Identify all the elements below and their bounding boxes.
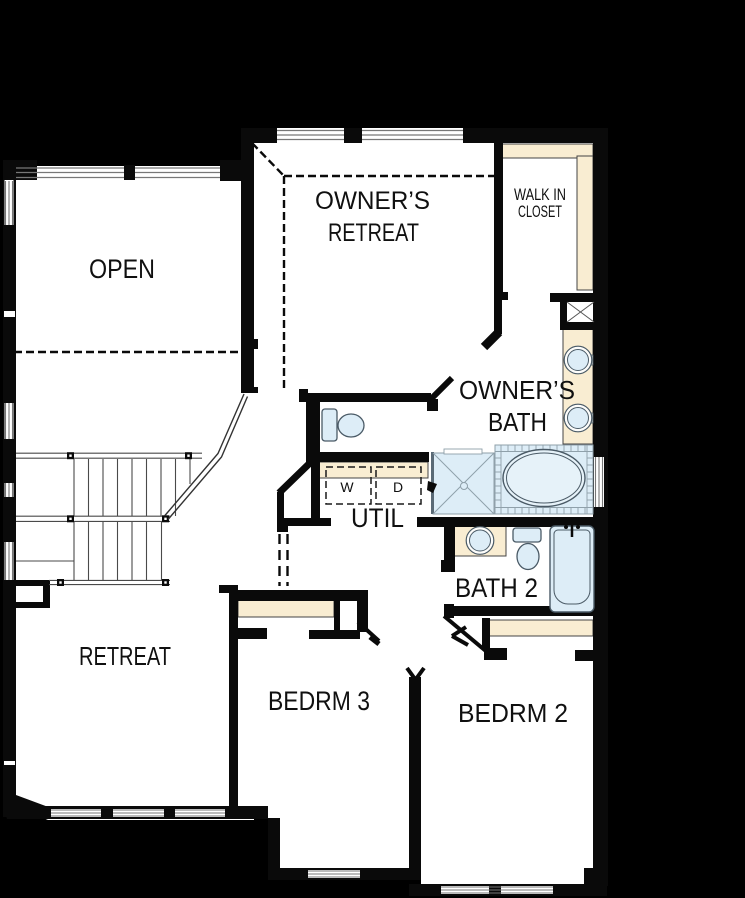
svg-text:D: D <box>393 479 403 495</box>
svg-text:BATH 2: BATH 2 <box>455 573 538 603</box>
svg-text:CLOSET: CLOSET <box>518 203 562 221</box>
svg-text:BEDRM 2: BEDRM 2 <box>458 698 568 728</box>
svg-text:RETREAT: RETREAT <box>328 219 419 247</box>
svg-text:OPEN: OPEN <box>89 254 155 284</box>
svg-text:WALK IN: WALK IN <box>514 186 566 204</box>
svg-text:UTIL: UTIL <box>351 503 404 533</box>
svg-text:W: W <box>340 479 354 495</box>
svg-text:OWNER’S: OWNER’S <box>315 187 430 215</box>
svg-text:RETREAT: RETREAT <box>79 641 171 671</box>
svg-text:OWNER’S: OWNER’S <box>459 375 575 405</box>
svg-text:BEDRM 3: BEDRM 3 <box>268 686 370 716</box>
svg-text:BATH: BATH <box>488 407 547 437</box>
